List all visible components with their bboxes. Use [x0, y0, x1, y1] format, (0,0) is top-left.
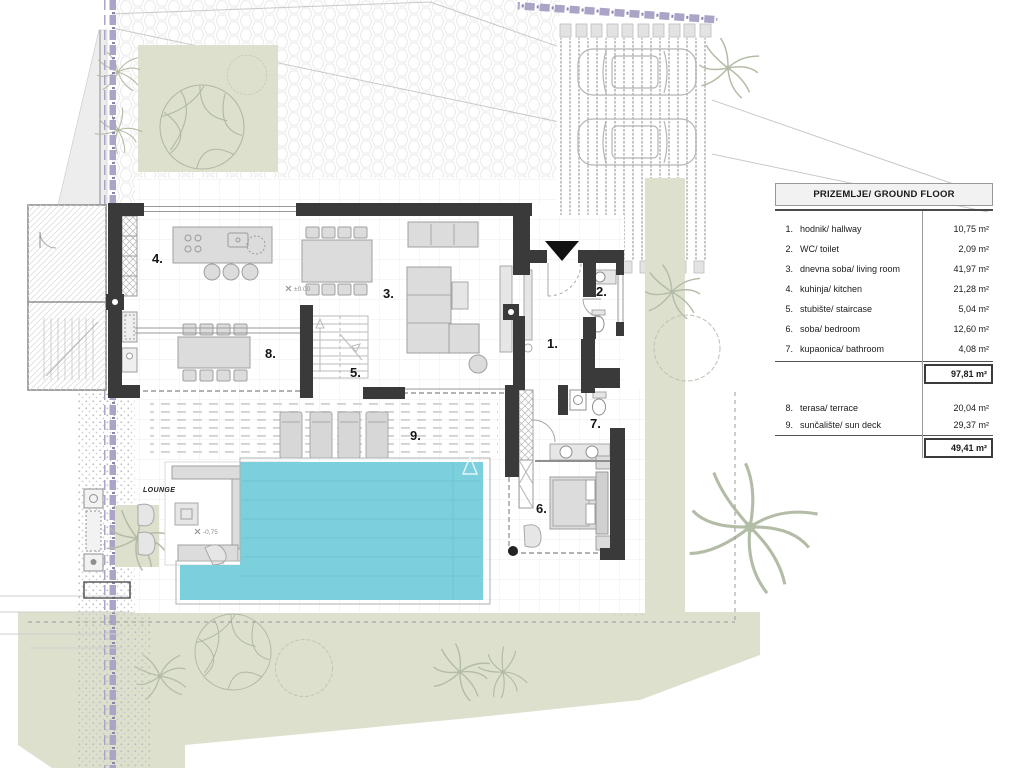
- label-bedroom: 6.: [536, 501, 547, 516]
- bar-stool: [242, 264, 258, 280]
- row-number: 8.: [775, 403, 800, 413]
- legend-row: 5. stubište/ staircase 5,04 m²: [775, 299, 993, 319]
- row-name: dnevna soba/ living room: [800, 264, 931, 274]
- legend-row: 8. terasa/ terrace 20,04 m²: [775, 400, 993, 417]
- label-wc: 2.: [596, 284, 607, 299]
- legend-body: 1. hodnik/ hallway 10,75 m² 2. WC/ toile…: [775, 209, 993, 458]
- row-number: 2.: [775, 244, 800, 254]
- row-number: 1.: [775, 224, 800, 234]
- armchair: [524, 525, 541, 548]
- row-area: 20,04 m²: [931, 403, 993, 413]
- row-area: 2,09 m²: [931, 244, 993, 254]
- label-bathroom: 7.: [590, 416, 601, 431]
- hall-cabinet: [524, 270, 532, 352]
- row-number: 5.: [775, 304, 800, 314]
- row-number: 4.: [775, 284, 800, 294]
- wardrobe: [519, 390, 533, 460]
- row-name: stubište/ staircase: [800, 304, 931, 314]
- legend-total-indoor-row: 97,81 m²: [775, 364, 993, 384]
- legend-row: 6. soba/ bedroom 12,60 m²: [775, 319, 993, 339]
- legend-row: 3. dnevna soba/ living room 41,97 m²: [775, 259, 993, 279]
- pantry-units: [122, 216, 137, 372]
- corner-column: [508, 546, 518, 556]
- row-number: 6.: [775, 324, 800, 334]
- legend-row: 7. kupaonica/ bathroom 4,08 m²: [775, 339, 993, 359]
- legend-title: PRIZEMLJE/ GROUND FLOOR: [775, 183, 993, 206]
- legend-divider: [775, 361, 993, 362]
- lounge-chair: [138, 532, 155, 555]
- legend-row: 2. WC/ toilet 2,09 m²: [775, 239, 993, 259]
- lounge-chair: [138, 504, 154, 526]
- row-area: 5,04 m²: [931, 304, 993, 314]
- level-main: ±0.00: [294, 286, 311, 293]
- row-area: 41,97 m²: [931, 264, 993, 274]
- label-sundeck: 9.: [410, 428, 421, 443]
- legend-gap: [775, 386, 993, 400]
- label-staircase: 5.: [350, 365, 361, 380]
- legend-divider: [775, 435, 993, 436]
- label-terrace: 8.: [265, 346, 276, 361]
- row-name: hodnik/ hallway: [800, 224, 931, 234]
- row-area: 12,60 m²: [931, 324, 993, 334]
- row-area: 4,08 m²: [931, 344, 993, 354]
- row-area: 10,75 m²: [931, 224, 993, 234]
- label-hallway: 1.: [547, 336, 558, 351]
- north-walkway-grid: [135, 178, 560, 205]
- row-name: kupaonica/ bathroom: [800, 344, 931, 354]
- label-living: 3.: [383, 286, 394, 301]
- coffee-table: [452, 282, 468, 309]
- bar-stool: [204, 264, 220, 280]
- row-name: kuhinja/ kitchen: [800, 284, 931, 294]
- legend-total-outdoor: 49,41 m²: [924, 438, 993, 458]
- row-area: 29,37 m²: [931, 420, 993, 430]
- legend-total-indoor: 97,81 m²: [924, 364, 993, 384]
- row-name: soba/ bedroom: [800, 324, 931, 334]
- ottoman: [469, 355, 487, 373]
- legend-row: 1. hodnik/ hallway 10,75 m²: [775, 219, 993, 239]
- label-lounge: LOUNGE: [143, 487, 175, 494]
- level-lounge: -0,75: [203, 529, 218, 536]
- row-name: terasa/ terrace: [800, 403, 931, 413]
- row-number: 3.: [775, 264, 800, 274]
- row-number: 9.: [775, 420, 800, 430]
- row-area: 21,28 m²: [931, 284, 993, 294]
- legend-row: 4. kuhinja/ kitchen 21,28 m²: [775, 279, 993, 299]
- row-number: 7.: [775, 344, 800, 354]
- legend-table: PRIZEMLJE/ GROUND FLOOR 1. hodnik/ hallw…: [775, 183, 993, 460]
- bar-stool: [223, 264, 239, 280]
- legend-row: 9. sunčalište/ sun deck 29,37 m²: [775, 417, 993, 434]
- row-name: sunčalište/ sun deck: [800, 420, 931, 430]
- legend-total-outdoor-row: 49,41 m²: [775, 438, 993, 458]
- row-name: WC/ toilet: [800, 244, 931, 254]
- page: 4. 3. 8. 5. 1. 2. 7. 6. 9. LOUNGE ±0.00 …: [0, 0, 1024, 768]
- label-kitchen: 4.: [152, 251, 163, 266]
